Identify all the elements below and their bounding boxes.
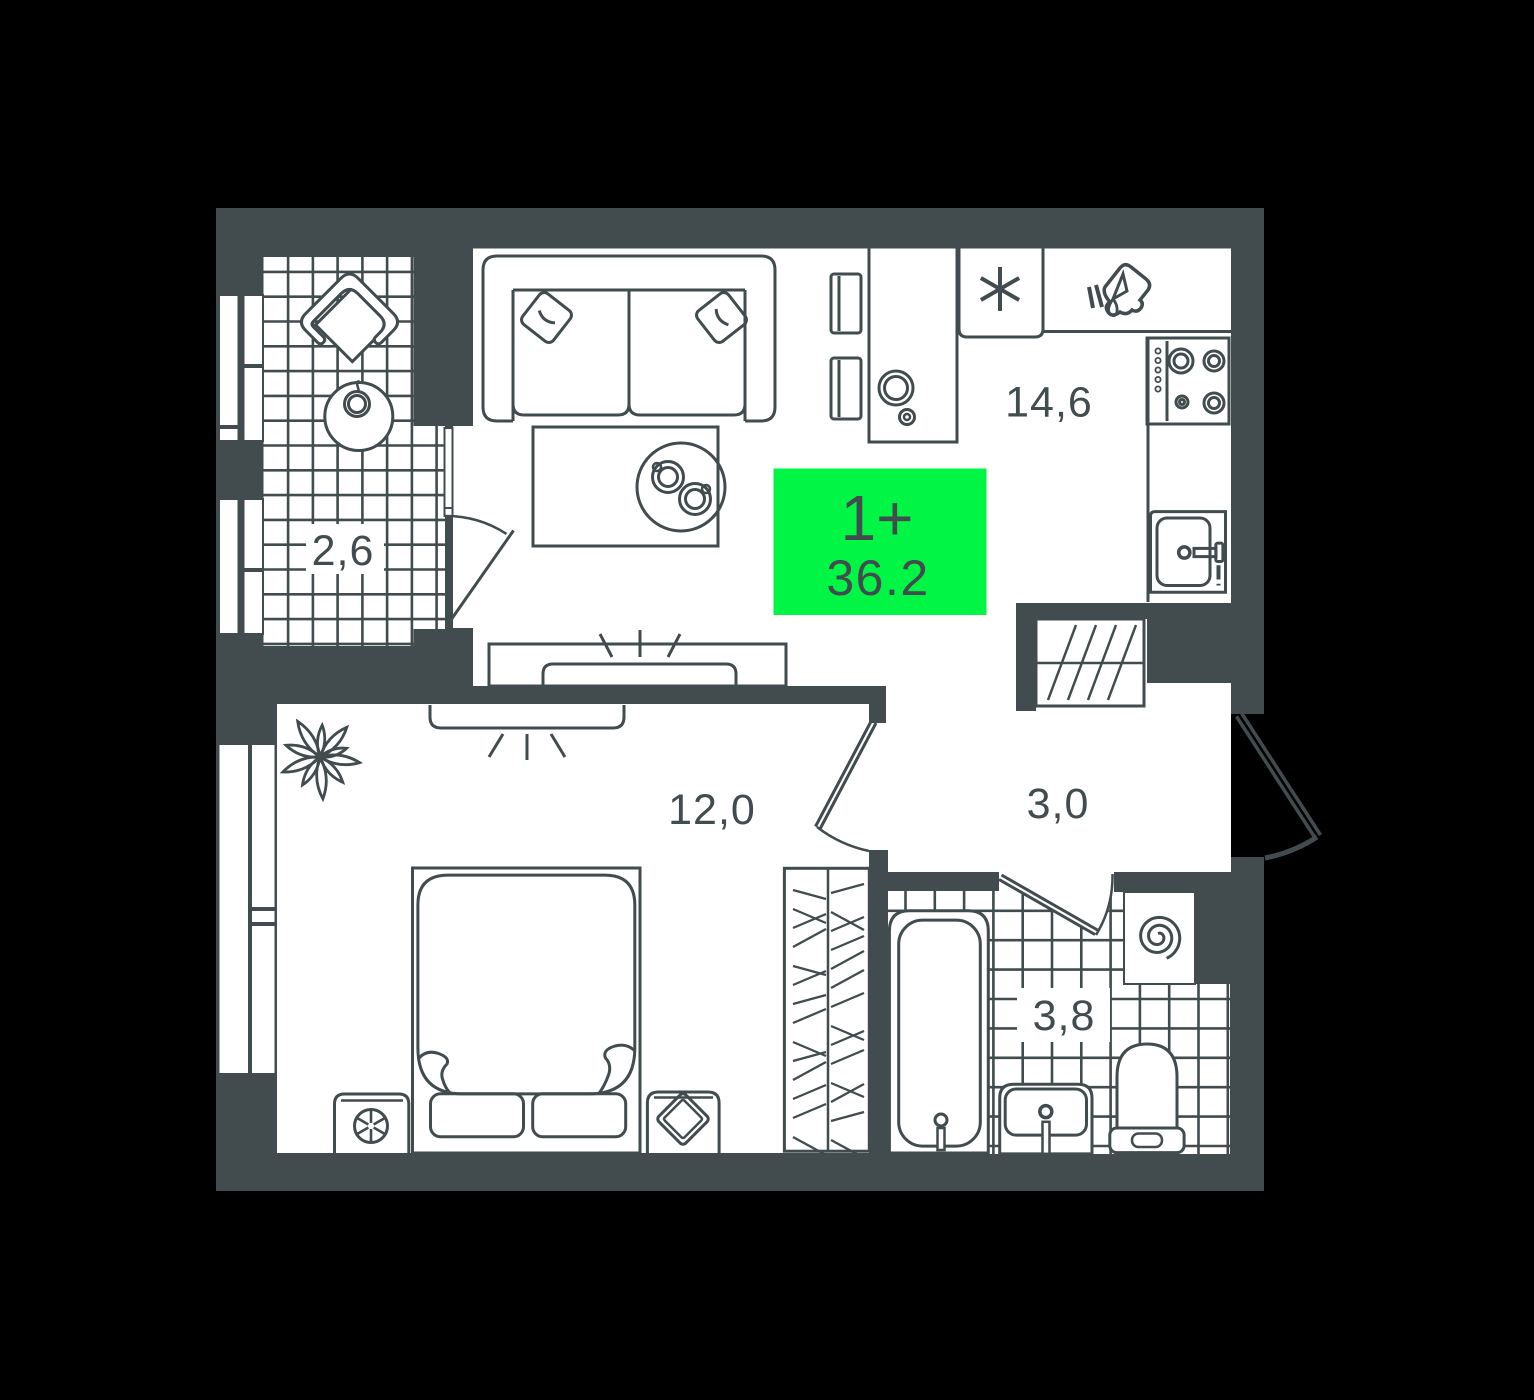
svg-text:3,8: 3,8 [1033, 992, 1096, 1040]
svg-text:2,6: 2,6 [312, 527, 375, 575]
svg-text:14,6: 14,6 [1005, 379, 1093, 427]
svg-text:1+: 1+ [841, 482, 914, 554]
svg-text:3,0: 3,0 [1027, 780, 1090, 828]
svg-text:12,0: 12,0 [668, 786, 756, 834]
svg-text:36.2: 36.2 [826, 550, 929, 606]
